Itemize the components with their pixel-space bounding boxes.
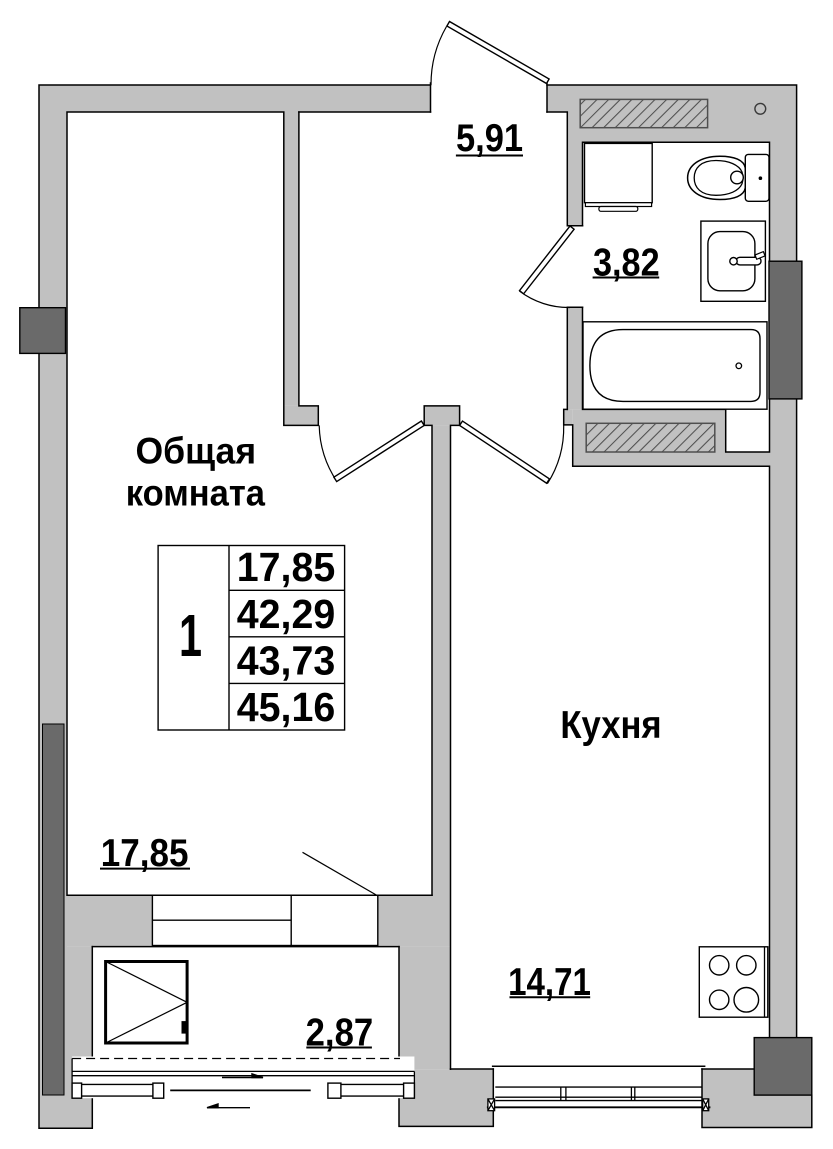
svg-text:Кухня: Кухня xyxy=(560,704,661,747)
svg-text:комната: комната xyxy=(126,473,266,514)
svg-text:17,85: 17,85 xyxy=(237,544,336,590)
svg-text:5,91: 5,91 xyxy=(456,117,523,160)
svg-text:43,73: 43,73 xyxy=(237,638,336,684)
svg-text:45,16: 45,16 xyxy=(237,684,336,730)
svg-text:Общая: Общая xyxy=(136,431,257,472)
svg-text:1: 1 xyxy=(179,603,202,669)
svg-text:42,29: 42,29 xyxy=(237,591,336,637)
